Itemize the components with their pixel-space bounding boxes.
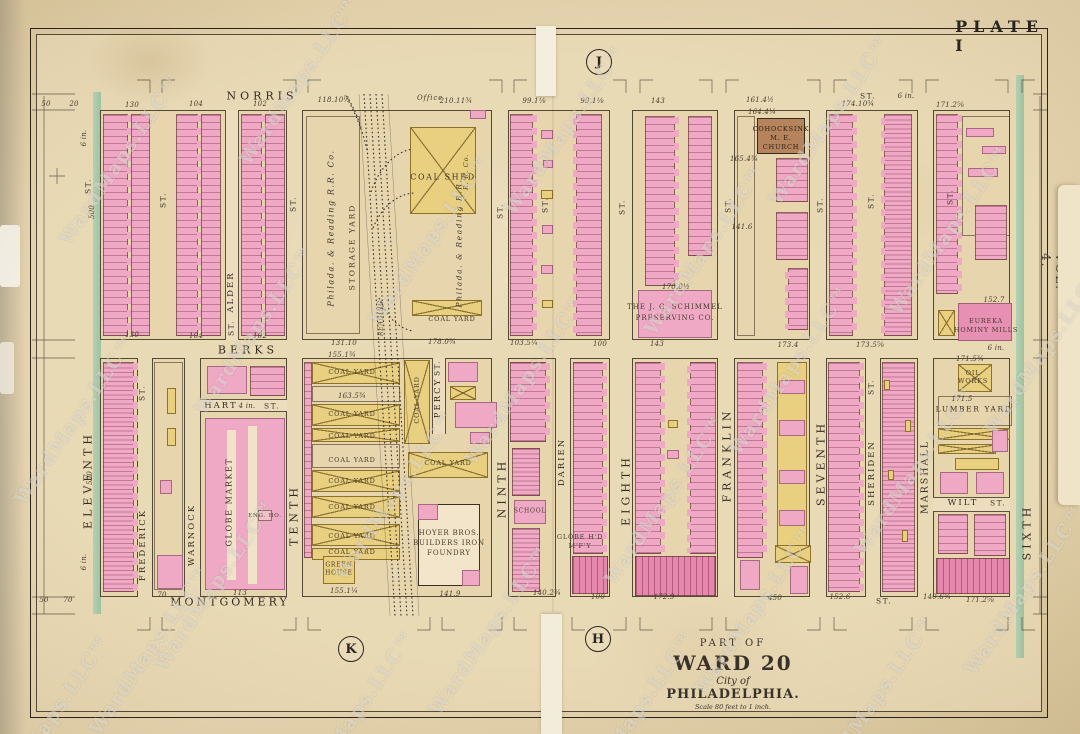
building [470, 432, 490, 444]
street-st-label: ST. [264, 402, 280, 411]
dimension-label: 130 [125, 101, 139, 109]
dimension-label: 102 [253, 100, 267, 108]
rowhouses [829, 114, 853, 336]
dimension-label: 152.7 [983, 296, 1004, 304]
building [543, 160, 553, 168]
dimension-label: 173.4 [777, 341, 798, 349]
rowhouses [510, 362, 546, 442]
street-st-label: ST. [860, 92, 876, 101]
rowhouses [572, 556, 608, 594]
dimension-label: 165.4¾ [730, 155, 758, 163]
dimension-label: 170.0½ [662, 283, 690, 291]
street-label-marshall: MARSHALL [920, 440, 931, 514]
atlas-plate: NORRIS BERKS MONTGOMERY ELEVENTH FREDERI… [0, 0, 1080, 734]
eureka-label: HOMINY MILLS [954, 326, 1018, 334]
dimension-label: 70 [157, 591, 166, 599]
street-label-ninth: NINTH [496, 458, 509, 519]
rowhouses [176, 114, 198, 336]
dimension-label: 143 [651, 97, 665, 105]
dimension-label: 171.2⅝ [966, 596, 994, 604]
rowhouses [882, 362, 915, 592]
dimension-label: 6 in. [898, 92, 915, 100]
church-label: M. E. [770, 134, 792, 142]
dimension-label: 50 [41, 100, 50, 108]
dimension-label: 104 [189, 100, 203, 108]
dimension-label: 103.5¼ [510, 339, 538, 347]
dimension-label: 113 [233, 589, 247, 597]
dimension-label: 99.1⅛ [580, 97, 603, 105]
scan-edge-patch [0, 225, 20, 287]
dimension-label: 178.0¾ [428, 338, 456, 346]
dimension-label: 6 in. [80, 554, 88, 571]
street-st-label: ST. [159, 192, 168, 208]
dimension-label: 6 in. [80, 130, 88, 147]
building [450, 386, 476, 400]
cartouche-philadelphia: PHILADELPHIA. [666, 687, 799, 702]
rowhouses [103, 362, 134, 592]
street-label-berks: BERKS [218, 344, 278, 357]
rowhouses [265, 114, 285, 336]
rowhouses [645, 116, 675, 286]
building [542, 225, 553, 234]
coal-yard-label: COAL YARD [328, 477, 375, 485]
building [790, 566, 808, 594]
lumber-yard-label: LUMBER YARD [936, 405, 1013, 414]
building [779, 470, 805, 484]
storage-yard-label: STORAGE YARD [348, 204, 357, 291]
building [966, 128, 994, 137]
dimension-label: 20 [69, 100, 78, 108]
building [418, 504, 438, 520]
globe-mfy-label: GLOBE H'D [557, 533, 603, 541]
building [955, 458, 999, 470]
engine-house-label: ENG. HO. [248, 513, 282, 519]
hoyer-label: FOUNDRY [427, 549, 471, 557]
building [775, 545, 811, 563]
coal-yard-label: COAL YARD [328, 548, 375, 556]
rowhouses [828, 362, 860, 592]
adjacent-page-flap [1058, 185, 1080, 505]
cartouche-city-of: City of [666, 676, 799, 687]
street-st-label: ST. [867, 193, 876, 209]
rowhouses [975, 205, 1007, 260]
hoyer-label: BUILDERS IRON [413, 539, 485, 547]
dimension-label: 161.4½ [746, 96, 774, 104]
coal-yard-building [412, 300, 482, 316]
coal-yard-label: COAL YARD [424, 459, 471, 467]
coal-yard-label: COAL YARD [413, 376, 421, 423]
rowhouses [512, 528, 540, 592]
dimension-label: 140.2¾ [533, 589, 561, 597]
street-st-label: ST. [84, 178, 93, 194]
building [542, 300, 553, 308]
coal-yard-label: COAL YARD [328, 432, 375, 440]
rowhouses [974, 514, 1006, 556]
dimension-label: 4 in. [239, 402, 256, 410]
dimension-label: 143 [650, 340, 664, 348]
green-house-label: HOUSE [325, 570, 353, 577]
oil-works-label: OIL [966, 369, 981, 377]
street-label-darien: DARIEN [557, 438, 567, 486]
dimension-label: 6 in. [988, 344, 1005, 352]
building [905, 420, 911, 432]
building [455, 402, 497, 428]
rowhouses [635, 362, 661, 554]
dimension-label: 450 [768, 594, 782, 602]
building [976, 472, 1004, 494]
dimension-label: 118.10½ [318, 96, 351, 104]
street-st-label: ST. [496, 203, 505, 219]
building [940, 472, 968, 494]
building [902, 530, 908, 542]
building [462, 570, 480, 586]
cartouche-ward: WARD 20 [666, 651, 799, 675]
building [779, 510, 805, 526]
coal-yard-label: COAL YARD [328, 410, 375, 418]
street-label-seventh: SEVENTH [815, 420, 828, 506]
street-st-label: ST. [724, 197, 733, 213]
building [884, 380, 890, 390]
coal-yard-label: COAL YARD [328, 368, 375, 376]
rowhouses [688, 116, 712, 256]
dimension-label: 104 [189, 332, 203, 340]
section-marker-j: J [586, 49, 612, 75]
dimension-label: 141.9 [439, 590, 460, 598]
rowhouses [512, 448, 540, 496]
street-label-sheriden: SHERIDEN [867, 440, 877, 506]
building [157, 555, 183, 589]
building [779, 380, 805, 394]
dimension-label: 171.5¾ [956, 355, 984, 363]
rowhouses [776, 212, 808, 260]
dimension-label: 155.1¾ [328, 351, 356, 359]
building [968, 168, 998, 177]
street-label-montgomery: MONTGOMERY [170, 596, 290, 609]
dimension-label: 100 [593, 340, 607, 348]
church-label: CHURCH [763, 143, 799, 151]
street-st-label: ST. [433, 360, 442, 376]
building [207, 366, 247, 394]
building [160, 480, 172, 494]
schimmel-label: THE J. G. SCHIMMEL [627, 303, 723, 311]
building [740, 560, 760, 590]
building [667, 450, 679, 459]
rowhouses [690, 362, 716, 554]
building [470, 110, 486, 119]
street-st-label: ST. [289, 196, 298, 212]
cartouche-part-of: PART OF [666, 638, 799, 649]
rowhouses [788, 268, 808, 330]
street-st-label: ST. [990, 499, 1006, 508]
scan-edge-patch [0, 342, 14, 394]
street-st-label: ST. [867, 379, 876, 395]
street-label-warnock: WARNOCK [187, 504, 197, 566]
green-house-label: GREEN [325, 562, 352, 569]
street-label-wilt: WILT [948, 498, 979, 508]
reading-track-label: READING [378, 300, 385, 336]
dimension-label: 131.10 [331, 339, 357, 347]
rowhouses [250, 366, 285, 396]
marker-letter: J [596, 55, 602, 70]
dimension-label: 102 [253, 332, 267, 340]
rowhouses [103, 114, 128, 336]
globe-market-building [205, 418, 285, 590]
street-label-eighth: EIGHTH [620, 454, 633, 526]
rowhouses [884, 114, 912, 336]
dimension-label: 141.6 [731, 223, 752, 231]
dimension-label: 70 [63, 596, 72, 604]
rowhouses [576, 114, 602, 336]
street-label-percy: PERCY [433, 378, 443, 418]
street-label-tenth: TENTH [288, 484, 301, 546]
street-label-alder: ALDER [226, 271, 236, 312]
railroad-label: Philada. & Reading R.R. [455, 179, 464, 308]
building [668, 420, 678, 428]
globe-mfy-label: M'F'Y [568, 542, 591, 550]
dimension-label: 163.5¾ [338, 392, 366, 400]
plate-title: PLATE I [955, 17, 1044, 55]
rowhouses [573, 362, 603, 554]
dimension-label: 100 [591, 593, 605, 601]
section-marker-h: H [585, 626, 611, 652]
building [541, 265, 553, 274]
fold-tape [541, 614, 562, 734]
rowhouses [776, 158, 808, 202]
eureka-label: EUREKA [969, 317, 1003, 325]
rowhouses [241, 114, 262, 336]
church-label: COHOCKSINK [753, 125, 810, 133]
marker-letter: K [345, 642, 356, 657]
rowhouses [304, 362, 312, 558]
dimension-label: 155.1¼ [330, 587, 358, 595]
building [167, 388, 176, 414]
schimmel-label: PRESERVING CO. [636, 314, 715, 322]
street-label-franklin: FRANKLIN [721, 408, 734, 503]
building [992, 430, 1008, 452]
dimension-label: 500 [86, 471, 94, 485]
school-label: SCHOOL [514, 508, 547, 515]
rowhouses [737, 362, 763, 558]
dimension-label: 173.5⅝ [856, 341, 884, 349]
dimension-label: 140.6¾ [923, 593, 951, 601]
dimension-label: 50 [39, 596, 48, 604]
dimension-label: 174.10¾ [842, 100, 875, 108]
street-st-label: ST. [138, 385, 147, 401]
dimension-label: 171.5 [951, 395, 972, 403]
building [938, 444, 996, 454]
street-st-label: ST. [946, 189, 955, 205]
dimension-label: 152.6 [829, 593, 850, 601]
marker-letter: H [592, 632, 604, 647]
building [982, 146, 1006, 154]
dimension-label: 171.2⅝ [936, 101, 964, 109]
coal-yard-label: COAL YARD [428, 315, 475, 323]
dimension-label: 210.11¾ [440, 97, 473, 105]
rowhouses [936, 558, 1010, 594]
building [541, 130, 553, 139]
building [448, 362, 478, 382]
building [938, 310, 955, 336]
street-label-hart: HART [204, 401, 237, 411]
hoyer-label: HOYER BROS. [419, 529, 480, 537]
oil-works-label: WORKS [958, 377, 988, 385]
street-st-label: ST. [816, 197, 825, 213]
dimension-label: 500 [88, 205, 96, 219]
street-st-label: ST. [541, 197, 550, 213]
dimension-label: 164.4¼ [748, 108, 776, 116]
railroad-co-label: Philada. & Reading R.R. Co. [327, 149, 336, 306]
building [167, 428, 176, 446]
dimension-label: 130 [125, 331, 139, 339]
building [888, 470, 894, 480]
street-st-label: ST. [876, 597, 892, 606]
dimension-label: 99.1⅛ [522, 97, 545, 105]
coal-yard-label: COAL YARD [328, 503, 375, 511]
coal-yard-label: COAL YARD [328, 456, 375, 464]
building [779, 420, 805, 436]
section-marker-k: K [338, 636, 364, 662]
street-label-sixth: SIXTH [1021, 504, 1034, 561]
coal-yard-label: COAL YARD [328, 532, 375, 540]
title-cartouche: PART OF WARD 20 City of PHILADELPHIA. Sc… [666, 638, 799, 711]
street-st-label: ST. [618, 199, 627, 215]
green-band-sixth [1016, 75, 1024, 658]
rowhouses [510, 114, 533, 336]
street-label-frederick: FREDERICK [138, 509, 148, 581]
rowhouses [938, 514, 968, 554]
rowhouses [635, 556, 716, 596]
rowhouses [201, 114, 221, 336]
dimension-label: 172.9 [653, 593, 674, 601]
cartouche-scale: Scale 80 feet to 1 inch. [666, 703, 799, 711]
globe-market-label: GLOBE MARKET [225, 458, 234, 547]
street-st-label: ST. [227, 320, 236, 336]
market-aisle [248, 426, 257, 584]
rowhouses [131, 114, 150, 336]
fold-tape [536, 26, 556, 96]
